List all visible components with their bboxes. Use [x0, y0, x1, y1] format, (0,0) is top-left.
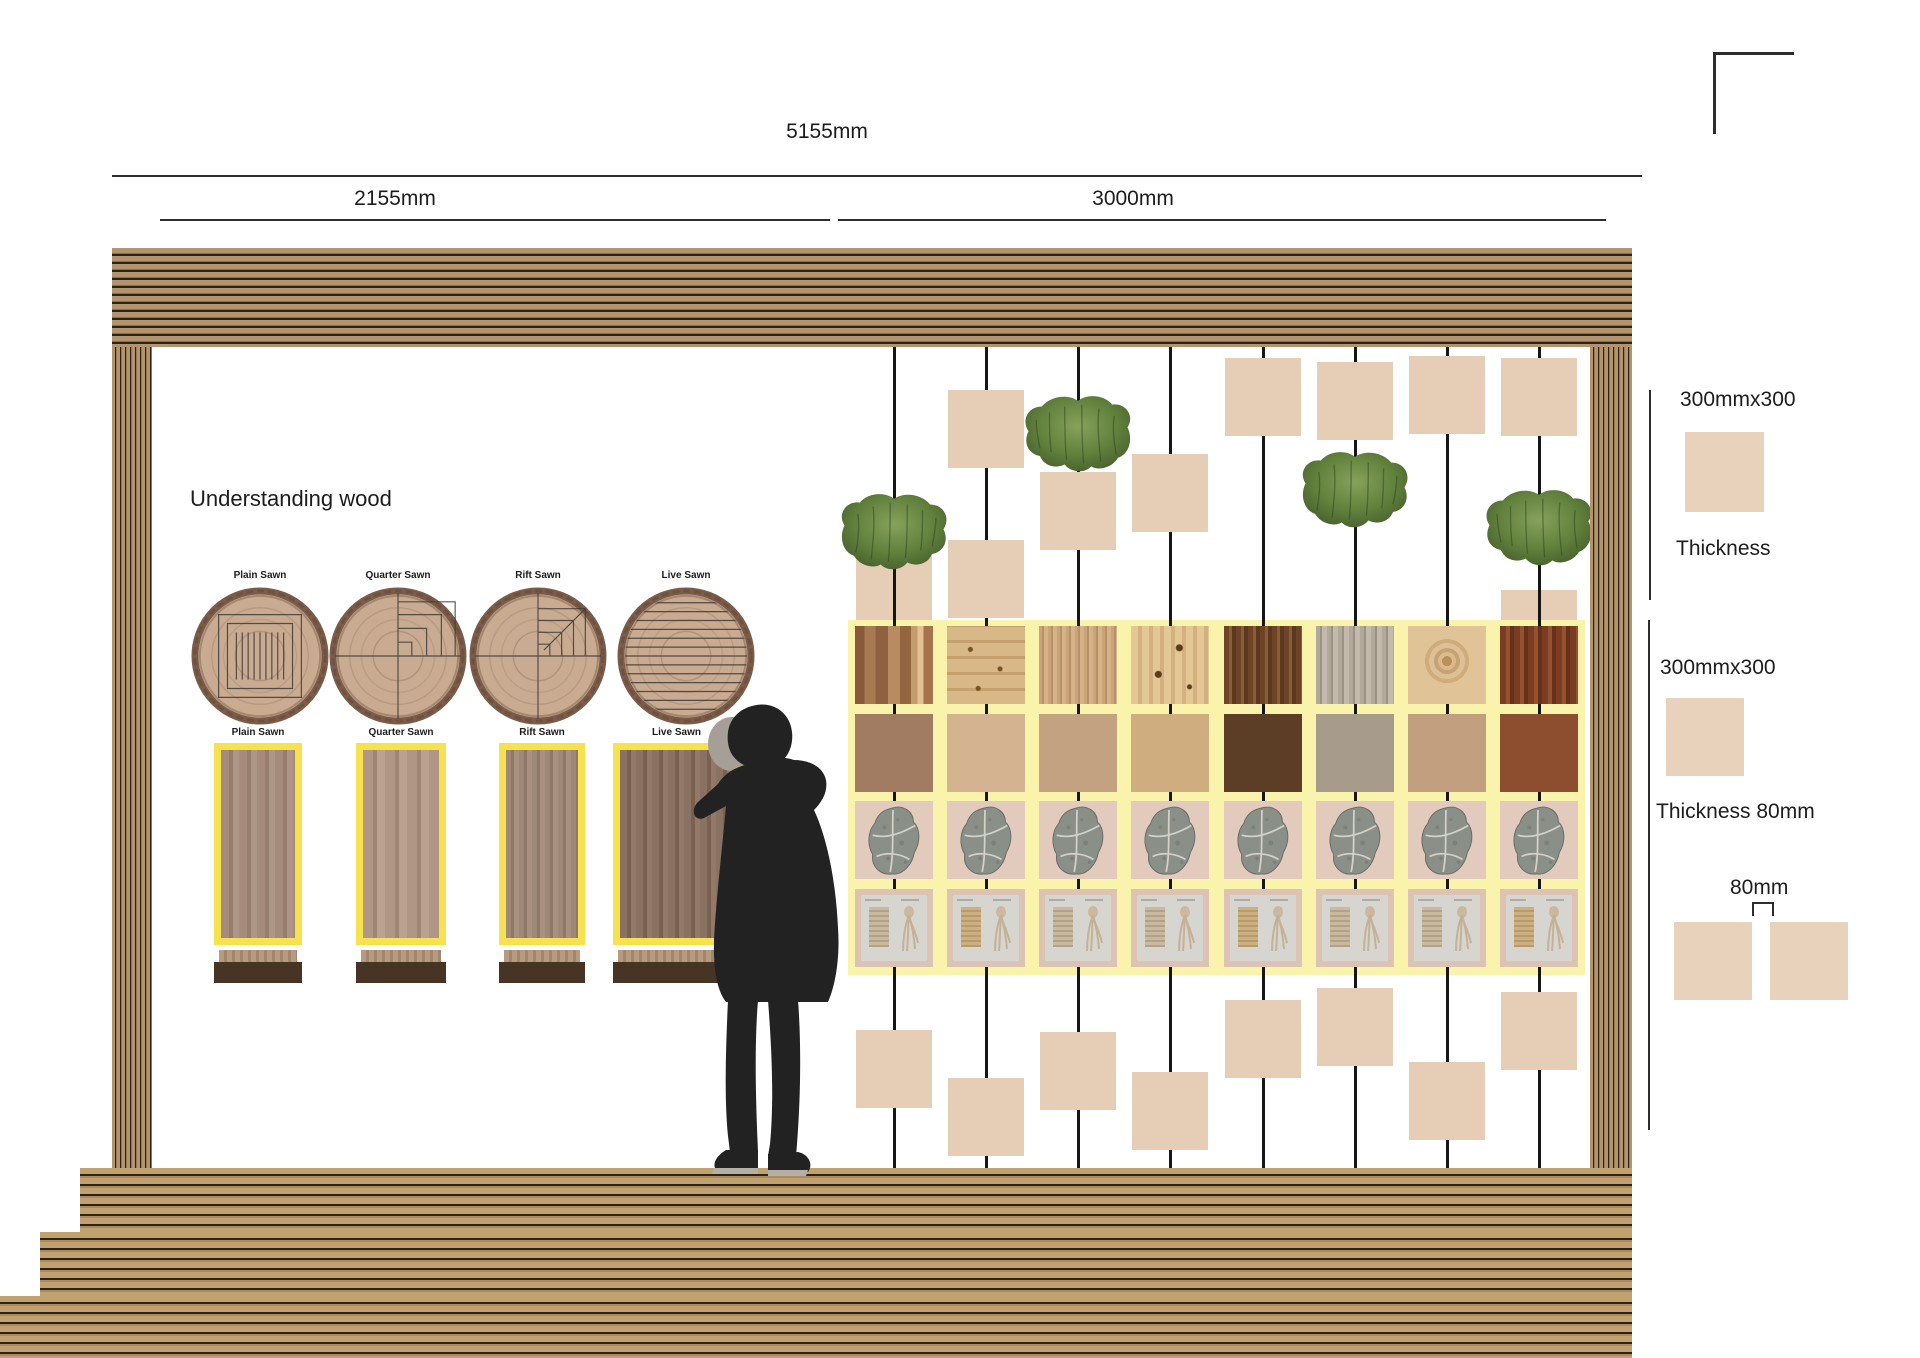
fabric-card-photo — [1230, 895, 1296, 961]
handwriting-mark — [1270, 899, 1288, 901]
grid-tile-stone-imprint — [1224, 801, 1302, 879]
woven-sample-swatch — [1053, 907, 1073, 947]
grid-tile-stone-imprint — [1500, 801, 1578, 879]
handwriting-mark — [1454, 899, 1472, 901]
log-section-label: Live Sawn — [662, 570, 711, 581]
grid-tile-stone-imprint — [1408, 801, 1486, 879]
fabric-card-photo — [1322, 895, 1388, 961]
grid-tile-fabric-card — [1316, 889, 1394, 967]
dimension-right-label: 3000mm — [1092, 187, 1174, 211]
dimension-total-line — [112, 175, 1642, 177]
grid-tile-stone-imprint — [1131, 801, 1209, 879]
annotation-line-bottom — [1648, 620, 1650, 1130]
grid-tile-fabric-card — [1500, 889, 1578, 967]
plank-sample-label: Rift Sawn — [519, 727, 565, 738]
tassel-sample — [1360, 905, 1380, 953]
fabric-card-photo — [1137, 895, 1203, 961]
gap-bracket-right — [1772, 902, 1774, 916]
woven-sample-swatch — [869, 907, 889, 947]
top-swatch-thickness-label: Thickness — [1676, 537, 1771, 561]
bottom-swatch-square — [1666, 698, 1744, 776]
hanging-panel-square — [856, 1030, 932, 1108]
grid-tile-wood-weathered-gray — [1316, 626, 1394, 704]
woven-sample-swatch — [1330, 907, 1350, 947]
top-swatch-size-label: 300mmx300 — [1680, 388, 1796, 412]
woven-sample-swatch — [1514, 907, 1534, 947]
hanging-panel-square — [1501, 358, 1577, 436]
woven-sample-swatch — [1422, 907, 1442, 947]
handwriting-mark — [993, 899, 1011, 901]
fabric-card-photo — [1414, 895, 1480, 961]
tassel-sample — [1544, 905, 1564, 953]
dimension-right-line — [838, 219, 1606, 221]
handwriting-mark — [1326, 899, 1342, 901]
tassel-sample — [899, 905, 919, 953]
section-title: Understanding wood — [190, 486, 392, 512]
wall-right-column — [1590, 347, 1632, 1168]
figure-left-shoe — [714, 1150, 758, 1170]
log-cross-section-quarter-sawn — [329, 586, 467, 726]
bottom-swatch-thickness-label: Thickness 80mm — [1656, 800, 1815, 824]
grid-tile-stone-imprint — [947, 801, 1025, 879]
grid-tile-stone-imprint — [855, 801, 933, 879]
figure-right-sole — [768, 1170, 808, 1176]
grid-tile-color — [1039, 714, 1117, 792]
grid-tile-color — [1500, 714, 1578, 792]
grid-tile-fabric-card — [947, 889, 1025, 967]
plank-stand-strip — [219, 950, 297, 962]
log-section-label: Quarter Sawn — [365, 570, 430, 581]
handwriting-mark — [901, 899, 919, 901]
hanging-panel-square — [1409, 1062, 1485, 1140]
hanging-panel-square — [1040, 472, 1116, 550]
corner-mark-vertical — [1713, 52, 1716, 134]
log-cross-section-plain-sawn — [191, 586, 329, 726]
plank-sample-label: Quarter Sawn — [368, 727, 433, 738]
floor-band-2 — [40, 1232, 1632, 1296]
grid-tile-wood-knotty-pine — [947, 626, 1025, 704]
plank-sample-label: Plain Sawn — [232, 727, 285, 738]
gap-size-label: 80mm — [1730, 876, 1788, 900]
grid-tile-color — [1408, 714, 1486, 792]
wall-top-beam — [112, 248, 1632, 347]
handwriting-mark — [1234, 899, 1250, 901]
handwriting-mark — [1418, 899, 1434, 901]
handwriting-mark — [1141, 899, 1157, 901]
grid-tile-color — [1131, 714, 1209, 792]
corner-mark-horizontal — [1714, 52, 1794, 55]
grid-tile-wood-mahogany — [1500, 626, 1578, 704]
figure-right-leg — [768, 1000, 800, 1156]
grid-tile-wood-dark-walnut — [1224, 626, 1302, 704]
gap-bracket-top — [1752, 902, 1774, 904]
log-section-label: Rift Sawn — [515, 570, 561, 581]
tassel-sample — [991, 905, 1011, 953]
moss-cluster — [1019, 394, 1137, 478]
plank-stand-bar — [499, 962, 585, 983]
wall-left-column — [112, 347, 152, 1168]
figure-torso — [694, 757, 839, 1002]
top-swatch-square — [1685, 432, 1764, 512]
hanging-panel-square — [1317, 362, 1393, 440]
grid-tile-color — [1316, 714, 1394, 792]
plank-stand-strip — [361, 950, 441, 962]
woven-sample-swatch — [961, 907, 981, 947]
hanging-panel-square — [948, 540, 1024, 618]
handwriting-mark — [957, 899, 973, 901]
grid-tile-wood-walnut — [855, 626, 933, 704]
grid-tile-wood-pale-pine-knot — [1408, 626, 1486, 704]
figure-right-shoe — [768, 1152, 810, 1172]
hanging-panel-square — [1409, 356, 1485, 434]
handwriting-mark — [1362, 899, 1380, 901]
plank-sample-wood — [363, 750, 439, 938]
grid-tile-wood-cedar-straight-grain — [1039, 626, 1117, 704]
fabric-card-photo — [1045, 895, 1111, 961]
grid-tile-color — [947, 714, 1025, 792]
plank-sample-wood — [221, 750, 295, 938]
grid-tile-fabric-card — [1039, 889, 1117, 967]
tassel-sample — [1175, 905, 1195, 953]
grid-tile-fabric-card — [1408, 889, 1486, 967]
hanging-panel-square — [1317, 988, 1393, 1066]
grid-tile-wood-knotty-spruce — [1131, 626, 1209, 704]
plank-stand-bar — [214, 962, 302, 983]
hanging-panel-square — [1501, 992, 1577, 1070]
figure-silhouette — [688, 700, 864, 1182]
handwriting-mark — [1049, 899, 1065, 901]
gap-swatch-square-right — [1770, 922, 1848, 1000]
grid-tile-stone-imprint — [1316, 801, 1394, 879]
exhibition-elevation-canvas: 5155mm 2155mm 3000mm Understanding wood … — [0, 0, 1920, 1358]
log-cross-section-rift-sawn — [469, 586, 607, 726]
fabric-card-photo — [1506, 895, 1572, 961]
grid-tile-fabric-card — [1131, 889, 1209, 967]
woven-sample-swatch — [1238, 907, 1258, 947]
gap-swatch-square-left — [1674, 922, 1752, 1000]
annotation-line-top — [1649, 390, 1651, 600]
tassel-sample — [1452, 905, 1472, 953]
hanging-panel-square — [1225, 1000, 1301, 1078]
hanging-panel-square — [1225, 358, 1301, 436]
dimension-left-label: 2155mm — [354, 187, 436, 211]
hanging-panel-square — [1132, 1072, 1208, 1150]
moss-cluster — [1296, 450, 1414, 534]
plank-sample-wood — [506, 750, 578, 938]
handwriting-mark — [865, 899, 881, 901]
plank-stand-strip — [504, 950, 580, 962]
tassel-sample — [1083, 905, 1103, 953]
bottom-swatch-size-label: 300mmx300 — [1660, 656, 1776, 680]
floor-band-3 — [0, 1296, 1632, 1358]
hanging-panel-square — [1132, 454, 1208, 532]
gap-bracket-left — [1752, 902, 1754, 916]
woven-sample-swatch — [1145, 907, 1165, 947]
grid-tile-fabric-card — [855, 889, 933, 967]
moss-cluster — [835, 492, 953, 576]
hanging-panel-square — [948, 390, 1024, 468]
fabric-card-photo — [953, 895, 1019, 961]
moss-cluster — [1480, 488, 1598, 572]
dimension-left-line — [160, 219, 830, 221]
log-section-label: Plain Sawn — [234, 570, 287, 581]
handwriting-mark — [1085, 899, 1103, 901]
grid-tile-fabric-card — [1224, 889, 1302, 967]
grid-tile-stone-imprint — [1039, 801, 1117, 879]
handwriting-mark — [1546, 899, 1564, 901]
figure-left-sole — [712, 1168, 758, 1174]
handwriting-mark — [1177, 899, 1195, 901]
hanging-panel-square — [948, 1078, 1024, 1156]
dimension-total-label: 5155mm — [786, 120, 868, 144]
fabric-card-photo — [861, 895, 927, 961]
tassel-sample — [1268, 905, 1288, 953]
grid-tile-color — [855, 714, 933, 792]
plank-stand-bar — [356, 962, 446, 983]
handwriting-mark — [1510, 899, 1526, 901]
grid-tile-color — [1224, 714, 1302, 792]
figure-left-leg — [726, 1000, 758, 1152]
hanging-panel-square — [1040, 1032, 1116, 1110]
